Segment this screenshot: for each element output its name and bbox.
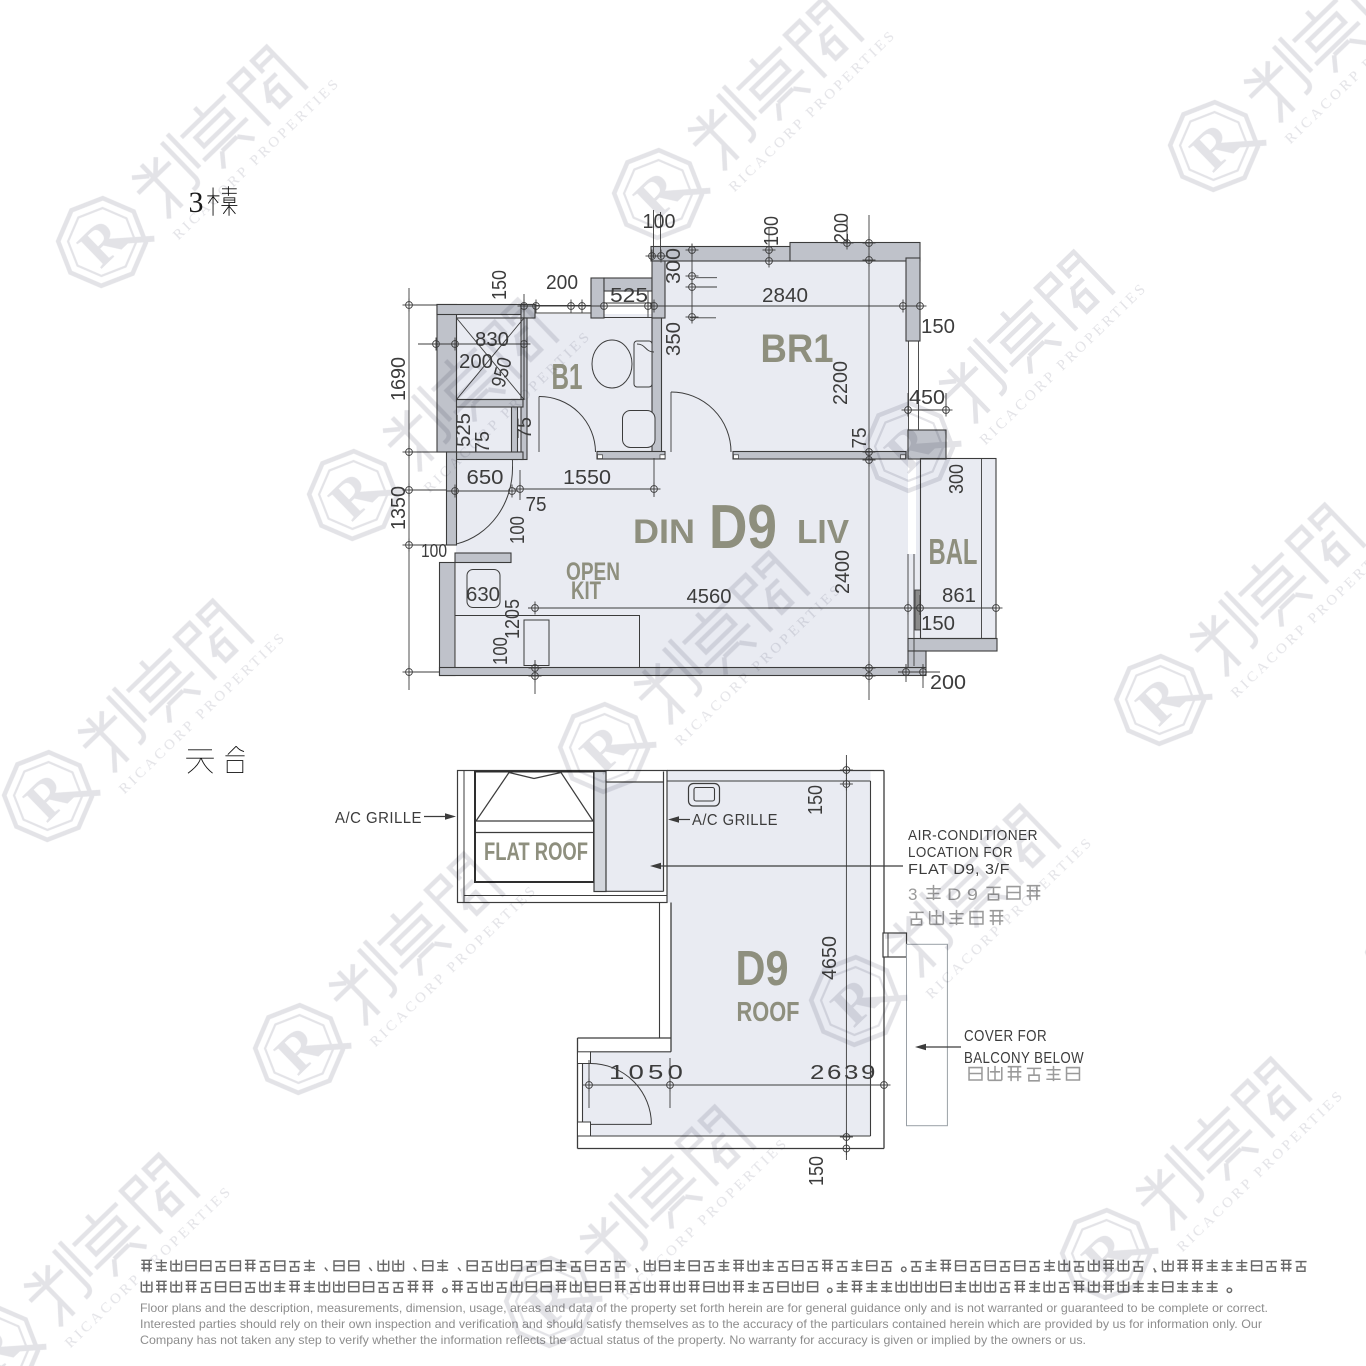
svg-text:150: 150 <box>921 613 955 635</box>
svg-text:150: 150 <box>489 270 511 300</box>
svg-text:1050: 1050 <box>609 1062 687 1084</box>
svg-text:350: 350 <box>663 322 685 356</box>
svg-text:COVER FOR: COVER FOR <box>964 1028 1047 1045</box>
svg-text:200: 200 <box>930 672 966 694</box>
svg-text:Floor plans and the descriptio: Floor plans and the description, measure… <box>140 1301 1268 1315</box>
svg-text:150: 150 <box>806 1156 828 1186</box>
svg-text:100: 100 <box>507 516 529 544</box>
svg-text:150: 150 <box>921 316 955 338</box>
svg-text:100: 100 <box>421 541 447 561</box>
svg-text:861: 861 <box>942 585 976 607</box>
svg-text:650: 650 <box>467 467 504 489</box>
svg-text:300: 300 <box>663 248 685 284</box>
svg-text:75: 75 <box>526 494 547 516</box>
svg-text:630: 630 <box>466 584 500 606</box>
svg-text:2639: 2639 <box>810 1062 878 1084</box>
svg-text:200: 200 <box>546 272 578 294</box>
svg-text:75: 75 <box>514 417 536 439</box>
svg-text:100: 100 <box>761 216 783 246</box>
svg-text:100: 100 <box>490 637 512 665</box>
svg-text:D9: D9 <box>736 942 789 996</box>
svg-text:BR1: BR1 <box>761 327 834 371</box>
svg-text:Company has not taken any step: Company has not taken any step to verify… <box>140 1333 1086 1347</box>
svg-text:KIT: KIT <box>571 577 601 605</box>
svg-text:2840: 2840 <box>762 285 808 307</box>
svg-text:A/C GRILLE: A/C GRILLE <box>692 812 778 829</box>
svg-text:200: 200 <box>831 213 853 243</box>
svg-text:BALCONY BELOW: BALCONY BELOW <box>964 1050 1084 1067</box>
svg-text:Interested parties should rely: Interested parties should rely on their … <box>140 1317 1262 1331</box>
svg-text:1205: 1205 <box>502 599 524 639</box>
svg-text:ROOF: ROOF <box>737 996 800 1027</box>
svg-text:BAL: BAL <box>929 531 978 572</box>
svg-text:FLAT ROOF: FLAT ROOF <box>484 838 588 866</box>
svg-text:1690: 1690 <box>388 357 410 401</box>
svg-text:525: 525 <box>610 285 648 307</box>
svg-text:A/C GRILLE: A/C GRILLE <box>335 810 422 827</box>
svg-text:LIV: LIV <box>797 513 849 550</box>
svg-text:300: 300 <box>946 464 968 494</box>
svg-text:DIN: DIN <box>633 513 695 551</box>
svg-text:150: 150 <box>805 785 827 815</box>
svg-text:1550: 1550 <box>563 467 611 489</box>
